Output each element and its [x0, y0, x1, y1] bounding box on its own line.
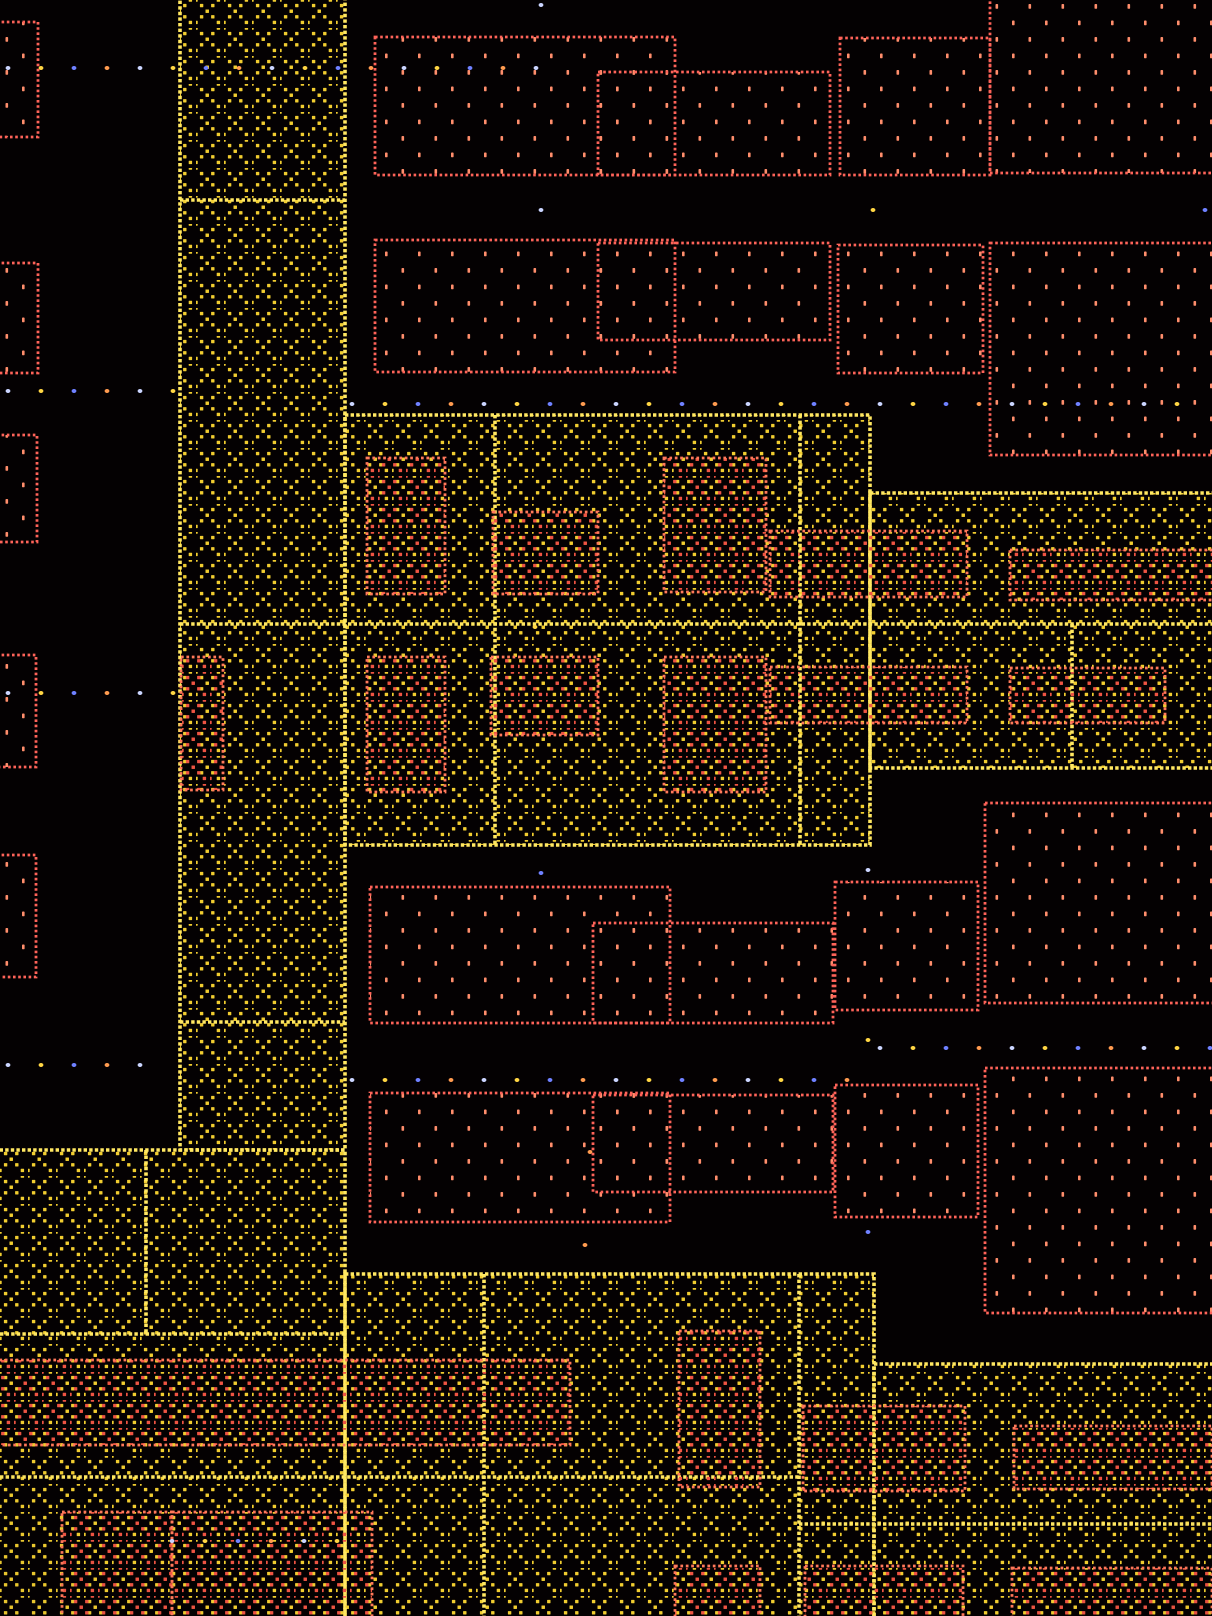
- grid-dot: [105, 691, 110, 695]
- grid-dot: [482, 1078, 487, 1082]
- grid-dot: [105, 389, 110, 393]
- metal-region-vband[interactable]: [180, 0, 345, 1150]
- grid-dot: [449, 1078, 454, 1082]
- cell-rect[interactable]: [0, 435, 37, 542]
- grid-dot: [171, 66, 176, 70]
- grid-dot: [416, 1078, 421, 1082]
- grid-dot: [6, 389, 11, 393]
- grid-dot: [878, 402, 883, 406]
- grid-dot: [171, 691, 176, 695]
- grid-dot: [713, 1078, 718, 1082]
- grid-dot: [303, 66, 308, 70]
- overlay-rect[interactable]: [770, 667, 967, 723]
- grid-dot: [72, 1063, 77, 1067]
- cell-rect[interactable]: [0, 263, 38, 373]
- cell-rect[interactable]: [0, 22, 38, 137]
- grid-dot: [468, 66, 473, 70]
- overlay-rect[interactable]: [1010, 668, 1165, 723]
- grid-dot: [237, 66, 242, 70]
- grid-dot: [350, 1078, 355, 1082]
- grid-dot: [416, 402, 421, 406]
- grid-dot: [779, 1078, 784, 1082]
- grid-dot: [539, 3, 544, 7]
- cell-rect[interactable]: [985, 1068, 1212, 1313]
- grid-dot: [539, 871, 544, 875]
- overlay-rect[interactable]: [491, 657, 598, 735]
- grid-dot: [501, 66, 506, 70]
- overlay-rect[interactable]: [664, 657, 766, 792]
- overlay-rect[interactable]: [1012, 1568, 1212, 1616]
- grid-dot: [335, 1539, 340, 1543]
- grid-dot: [435, 66, 440, 70]
- cell-rect[interactable]: [598, 72, 830, 175]
- grid-dot: [812, 402, 817, 406]
- grid-dot: [39, 1063, 44, 1067]
- overlay-rect[interactable]: [1010, 550, 1212, 600]
- grid-dot: [138, 1063, 143, 1067]
- cell-rect[interactable]: [598, 243, 830, 340]
- grid-dot: [105, 1063, 110, 1067]
- grid-dot: [878, 1046, 883, 1050]
- grid-dot: [336, 66, 341, 70]
- cell-rect[interactable]: [835, 882, 978, 1010]
- grid-dot: [383, 402, 388, 406]
- grid-dot: [539, 208, 544, 212]
- grid-dot: [866, 1230, 871, 1234]
- layout-canvas[interactable]: [0, 0, 1212, 1616]
- grid-dot: [779, 402, 784, 406]
- grid-dot: [1076, 1046, 1081, 1050]
- cell-rect[interactable]: [593, 1095, 833, 1192]
- grid-dot: [845, 402, 850, 406]
- overlay-rect[interactable]: [675, 1566, 760, 1616]
- cell-rect[interactable]: [835, 1085, 978, 1217]
- overlay-rect[interactable]: [770, 531, 967, 597]
- grid-dot: [680, 1078, 685, 1082]
- grid-dot: [138, 66, 143, 70]
- grid-dot: [583, 1243, 588, 1247]
- grid-dot: [170, 1539, 175, 1543]
- grid-dot: [350, 402, 355, 406]
- grid-dot: [588, 1150, 593, 1154]
- grid-dot: [515, 402, 520, 406]
- grid-dot: [6, 691, 11, 695]
- grid-dot: [871, 208, 876, 212]
- grid-dot: [39, 66, 44, 70]
- grid-dot: [614, 402, 619, 406]
- grid-dot: [449, 402, 454, 406]
- grid-dot: [138, 691, 143, 695]
- grid-dot: [6, 1063, 11, 1067]
- grid-dot: [680, 402, 685, 406]
- overlay-rect[interactable]: [181, 657, 223, 790]
- grid-dot: [39, 389, 44, 393]
- grid-dot: [1043, 402, 1048, 406]
- grid-dot: [647, 1078, 652, 1082]
- grid-dot: [482, 402, 487, 406]
- grid-dot: [746, 402, 751, 406]
- cell-rect[interactable]: [985, 803, 1212, 1003]
- grid-dot: [533, 625, 538, 629]
- grid-dot: [1109, 402, 1114, 406]
- grid-dot: [1010, 1046, 1015, 1050]
- grid-dot: [977, 1046, 982, 1050]
- grid-dot: [548, 402, 553, 406]
- overlay-rect[interactable]: [62, 1512, 172, 1616]
- overlay-rect[interactable]: [0, 1360, 570, 1445]
- cell-rect[interactable]: [838, 245, 983, 373]
- grid-dot: [911, 1046, 916, 1050]
- grid-dot: [6, 66, 11, 70]
- grid-dot: [269, 1539, 274, 1543]
- grid-dot: [845, 1078, 850, 1082]
- grid-dot: [171, 389, 176, 393]
- grid-dot: [236, 1539, 241, 1543]
- grid-dot: [270, 66, 275, 70]
- grid-dot: [647, 402, 652, 406]
- overlay-rect[interactable]: [493, 512, 598, 594]
- grid-dot: [515, 1078, 520, 1082]
- grid-dot: [812, 1078, 817, 1082]
- grid-dot: [204, 66, 209, 70]
- grid-dot: [977, 402, 982, 406]
- cell-rect[interactable]: [990, 0, 1212, 173]
- grid-dot: [1109, 1046, 1114, 1050]
- grid-dot: [534, 66, 539, 70]
- grid-dot: [866, 868, 871, 872]
- overlay-rect[interactable]: [664, 458, 766, 592]
- grid-dot: [302, 1539, 307, 1543]
- grid-dot: [72, 66, 77, 70]
- grid-dot: [138, 389, 143, 393]
- grid-dot: [203, 1539, 208, 1543]
- grid-dot: [944, 402, 949, 406]
- ic-layout-drawing[interactable]: [0, 0, 1212, 1616]
- grid-dot: [713, 402, 718, 406]
- overlay-rect[interactable]: [803, 1406, 965, 1491]
- grid-dot: [383, 1078, 388, 1082]
- grid-dot: [944, 1046, 949, 1050]
- grid-dot: [581, 402, 586, 406]
- cell-rect[interactable]: [990, 243, 1212, 455]
- grid-dot: [72, 691, 77, 695]
- grid-dot: [1076, 402, 1081, 406]
- cell-rect[interactable]: [840, 38, 990, 175]
- overlay-rect[interactable]: [172, 1512, 372, 1616]
- grid-dot: [911, 402, 916, 406]
- grid-dot: [1203, 208, 1208, 212]
- cell-rect[interactable]: [0, 655, 36, 767]
- overlay-rect[interactable]: [679, 1331, 760, 1487]
- cell-rect[interactable]: [0, 855, 36, 977]
- cell-rect[interactable]: [593, 923, 833, 1023]
- grid-dot: [1010, 402, 1015, 406]
- grid-dot: [1142, 1046, 1147, 1050]
- grid-dot: [1043, 1046, 1048, 1050]
- grid-dot: [866, 1038, 871, 1042]
- grid-dot: [369, 66, 374, 70]
- overlay-rect[interactable]: [1014, 1426, 1212, 1489]
- grid-dot: [105, 66, 110, 70]
- grid-dot: [402, 66, 407, 70]
- grid-dot: [39, 691, 44, 695]
- grid-dot: [746, 1078, 751, 1082]
- overlay-rect[interactable]: [367, 458, 445, 594]
- grid-dot: [1175, 402, 1180, 406]
- overlay-rect[interactable]: [367, 657, 445, 792]
- overlay-rect[interactable]: [805, 1566, 963, 1616]
- grid-dot: [614, 1078, 619, 1082]
- grid-dot: [548, 1078, 553, 1082]
- grid-dot: [581, 1078, 586, 1082]
- grid-dot: [72, 389, 77, 393]
- grid-dot: [1142, 402, 1147, 406]
- grid-dot: [1175, 1046, 1180, 1050]
